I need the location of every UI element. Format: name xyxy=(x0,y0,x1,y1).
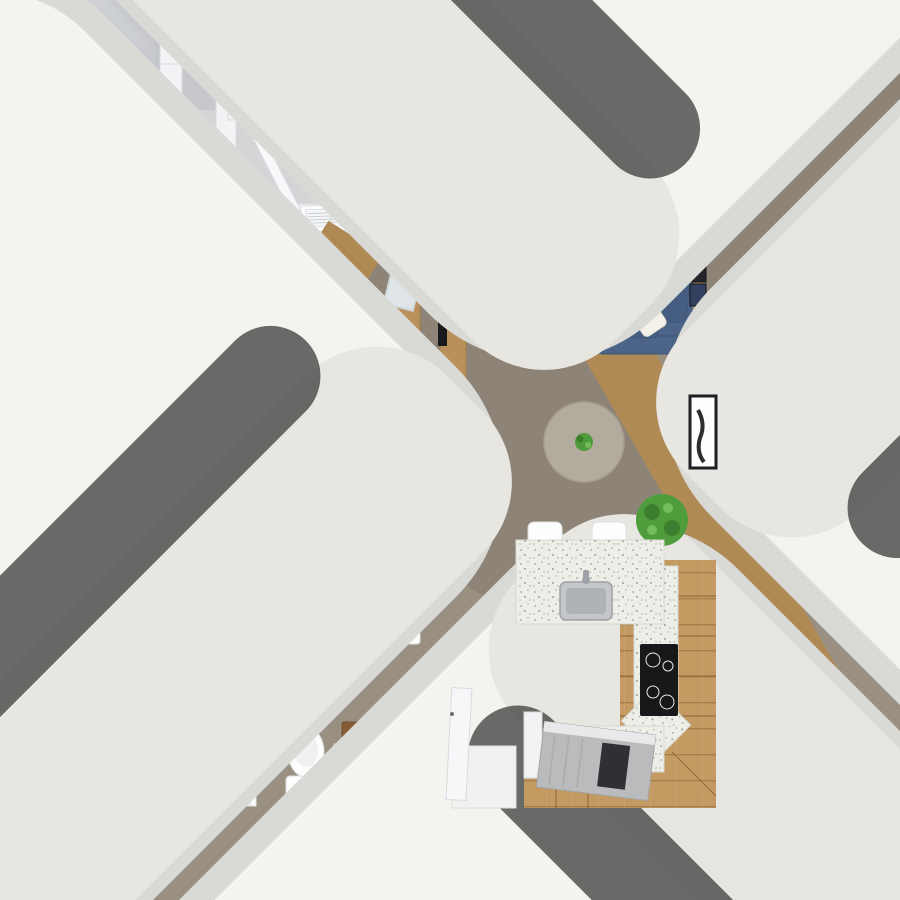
centerpiece-plant xyxy=(575,433,593,451)
dining-wall-art xyxy=(690,396,716,468)
cooktop xyxy=(640,644,678,716)
floor-plan-canvas xyxy=(0,0,900,900)
refrigerator xyxy=(537,721,656,800)
door-handle xyxy=(450,712,454,716)
sink-basin xyxy=(566,588,606,614)
apartment-plan xyxy=(0,0,900,900)
floor-plan-3d xyxy=(0,0,900,900)
potted-plant-large xyxy=(636,494,688,546)
